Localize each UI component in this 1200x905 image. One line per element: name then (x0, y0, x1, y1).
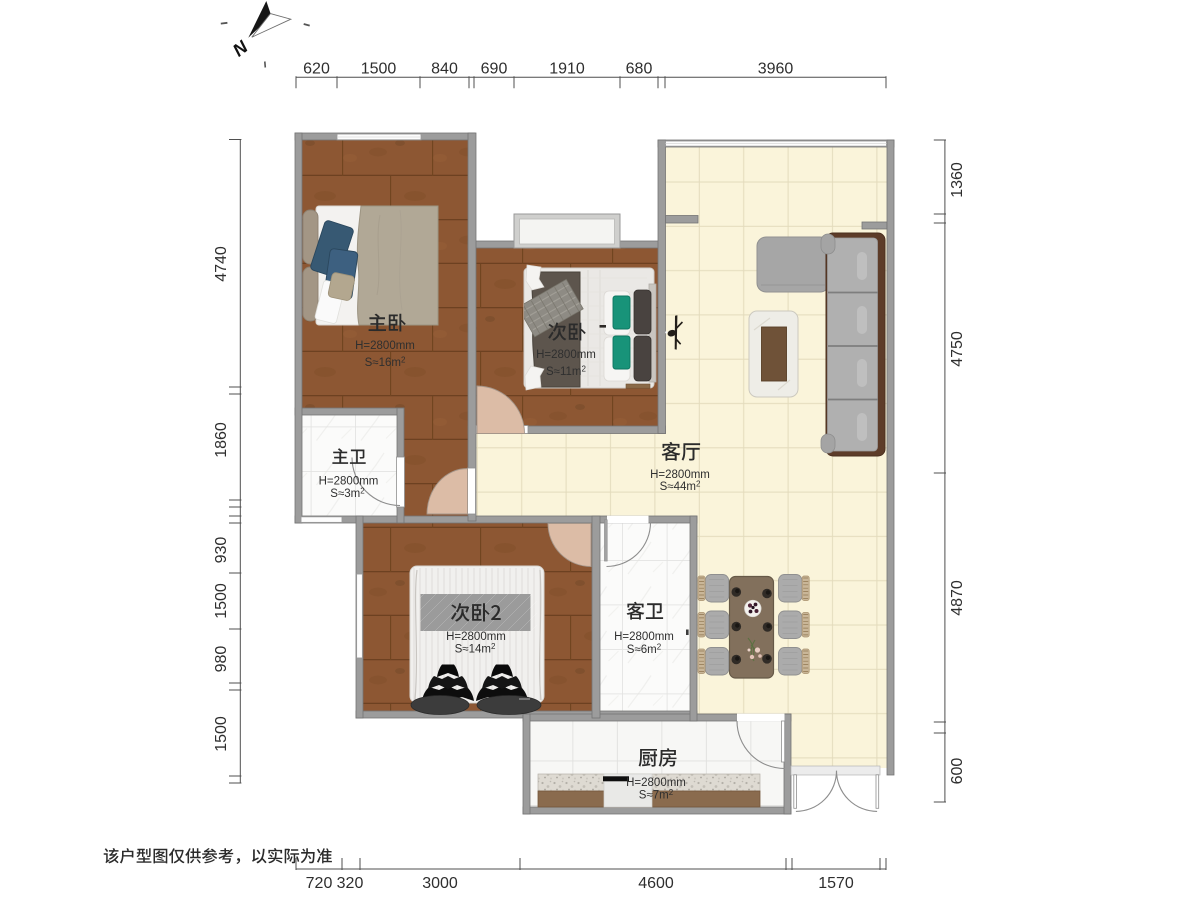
svg-text:1360: 1360 (949, 162, 966, 198)
svg-text:600: 600 (949, 758, 966, 785)
svg-text:S≈3m2: S≈3m2 (330, 487, 365, 501)
svg-text:S≈7m2: S≈7m2 (639, 788, 674, 802)
svg-text:1570: 1570 (818, 875, 854, 892)
svg-text:H=2800mm: H=2800mm (614, 631, 674, 643)
svg-text:H=2800mm: H=2800mm (446, 631, 506, 643)
svg-text:720: 720 (306, 875, 333, 892)
svg-text:S≈11m2: S≈11m2 (546, 365, 587, 379)
svg-text:S≈16m2: S≈16m2 (365, 356, 406, 370)
svg-text:620: 620 (303, 61, 330, 78)
svg-text:980: 980 (213, 646, 230, 673)
svg-text:H=2800mm: H=2800mm (626, 777, 686, 789)
svg-text:4750: 4750 (949, 331, 966, 367)
svg-text:840: 840 (431, 61, 458, 78)
svg-text:320: 320 (337, 875, 364, 892)
svg-text:H=2800mm: H=2800mm (319, 476, 379, 488)
svg-text:S≈44m2: S≈44m2 (660, 480, 701, 494)
svg-text:S≈14m2: S≈14m2 (455, 642, 496, 656)
svg-text:680: 680 (626, 61, 653, 78)
svg-text:H=2800mm: H=2800mm (355, 340, 415, 352)
svg-text:690: 690 (481, 61, 508, 78)
svg-text:3000: 3000 (422, 875, 458, 892)
svg-text:H=2800mm: H=2800mm (536, 349, 596, 361)
svg-text:4740: 4740 (213, 246, 230, 282)
svg-text:4870: 4870 (949, 580, 966, 616)
svg-text:1500: 1500 (361, 61, 397, 78)
svg-text:1860: 1860 (213, 422, 230, 458)
svg-text:930: 930 (213, 537, 230, 564)
svg-text:1500: 1500 (213, 716, 230, 752)
svg-text:H=2800mm: H=2800mm (650, 469, 710, 481)
svg-text:3960: 3960 (758, 61, 794, 78)
svg-text:S≈6m2: S≈6m2 (627, 643, 662, 657)
svg-text:1910: 1910 (549, 61, 585, 78)
svg-text:4600: 4600 (638, 875, 674, 892)
svg-text:1500: 1500 (213, 583, 230, 619)
